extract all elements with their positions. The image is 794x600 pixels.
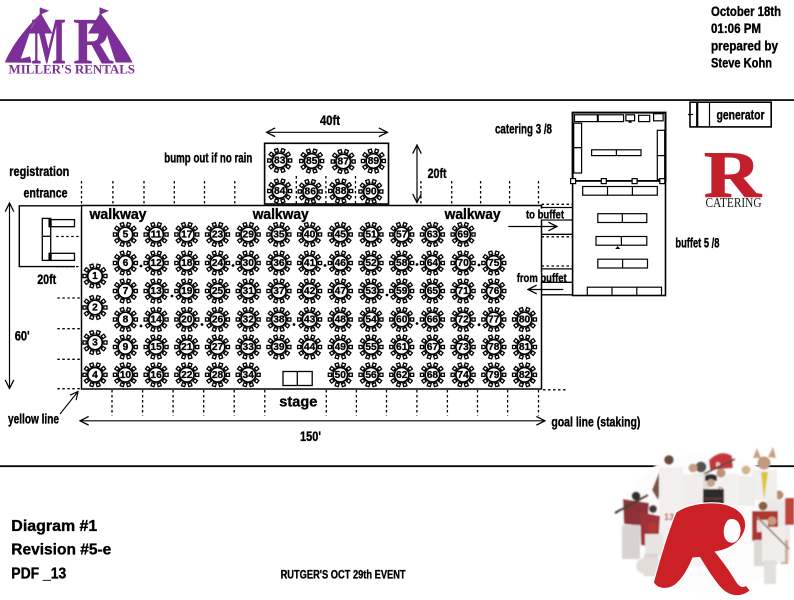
svg-text:CATERING: CATERING [706, 195, 762, 210]
svg-text:74: 74 [457, 370, 469, 381]
svg-text:72: 72 [457, 315, 469, 326]
svg-text:14: 14 [150, 315, 162, 326]
svg-text:PDF _13: PDF _13 [11, 566, 66, 583]
svg-text:65: 65 [427, 286, 439, 297]
svg-text:2: 2 [92, 303, 98, 314]
svg-text:5: 5 [123, 230, 129, 241]
svg-text:82: 82 [519, 370, 531, 381]
svg-text:October 18th: October 18th [711, 4, 781, 19]
svg-text:01:06 PM: 01:06 PM [711, 21, 761, 36]
svg-text:35: 35 [273, 230, 285, 241]
svg-text:goal line (staking): goal line (staking) [551, 415, 640, 430]
svg-text:58: 58 [396, 258, 408, 269]
svg-text:15: 15 [150, 342, 162, 353]
svg-text:1: 1 [92, 271, 98, 282]
svg-text:25: 25 [212, 286, 224, 297]
svg-text:33: 33 [243, 342, 255, 353]
svg-text:7: 7 [123, 286, 129, 297]
svg-text:66: 66 [427, 315, 439, 326]
svg-text:57: 57 [396, 230, 408, 241]
svg-text:12: 12 [150, 258, 162, 269]
svg-text:catering 3 /8: catering 3 /8 [495, 121, 552, 136]
svg-text:28: 28 [212, 370, 224, 381]
svg-text:9: 9 [123, 342, 129, 353]
svg-text:77: 77 [488, 315, 500, 326]
svg-text:3: 3 [92, 338, 98, 349]
svg-text:walkway: walkway [444, 206, 502, 223]
svg-text:53: 53 [365, 286, 377, 297]
svg-text:8: 8 [123, 315, 129, 326]
svg-text:59: 59 [396, 286, 408, 297]
svg-text:RUTGERS: RUTGERS [705, 497, 723, 501]
svg-text:85: 85 [306, 156, 318, 167]
svg-text:11: 11 [151, 230, 162, 241]
svg-text:81: 81 [519, 342, 531, 353]
svg-text:19: 19 [181, 286, 193, 297]
svg-text:50: 50 [335, 370, 347, 381]
svg-text:registration: registration [9, 164, 69, 179]
svg-text:68: 68 [427, 370, 439, 381]
svg-text:17: 17 [181, 230, 193, 241]
svg-text:30: 30 [243, 258, 255, 269]
svg-text:90: 90 [365, 187, 377, 198]
svg-text:36: 36 [273, 258, 285, 269]
svg-text:37: 37 [273, 286, 285, 297]
svg-text:39: 39 [273, 342, 285, 353]
svg-text:46: 46 [335, 258, 347, 269]
svg-text:51: 51 [365, 230, 377, 241]
svg-text:walkway: walkway [89, 206, 148, 223]
svg-text:32: 32 [243, 315, 255, 326]
svg-text:79: 79 [488, 370, 500, 381]
svg-text:56: 56 [365, 370, 377, 381]
svg-text:27: 27 [212, 342, 224, 353]
svg-text:prepared by: prepared by [711, 38, 778, 53]
svg-text:60: 60 [396, 315, 408, 326]
svg-text:16: 16 [150, 370, 162, 381]
svg-text:20ft: 20ft [37, 272, 56, 287]
svg-text:MILLER'S RENTALS: MILLER'S RENTALS [9, 62, 136, 77]
svg-text:150': 150' [300, 429, 321, 444]
svg-text:70: 70 [457, 258, 469, 269]
svg-text:80: 80 [519, 315, 531, 326]
svg-text:84: 84 [274, 186, 286, 197]
svg-text:walkway: walkway [252, 206, 310, 223]
svg-text:21: 21 [181, 342, 193, 353]
svg-text:20: 20 [181, 315, 193, 326]
svg-text:71: 71 [457, 286, 469, 297]
svg-text:69: 69 [457, 230, 469, 241]
svg-text:48: 48 [335, 315, 347, 326]
svg-text:from buffet: from buffet [517, 271, 567, 285]
svg-text:4: 4 [92, 370, 98, 381]
svg-text:64: 64 [427, 258, 439, 269]
svg-text:67: 67 [427, 342, 439, 353]
svg-text:entrance: entrance [24, 186, 68, 201]
svg-text:23: 23 [212, 230, 224, 241]
svg-text:78: 78 [488, 342, 500, 353]
svg-text:73: 73 [457, 342, 469, 353]
svg-text:26: 26 [212, 315, 224, 326]
svg-text:54: 54 [365, 315, 377, 326]
svg-text:22: 22 [181, 370, 193, 381]
svg-text:52: 52 [365, 258, 377, 269]
svg-text:75: 75 [488, 258, 500, 269]
svg-text:yellow line: yellow line [8, 411, 59, 426]
svg-text:Steve Kohn: Steve Kohn [711, 56, 772, 71]
svg-text:43: 43 [304, 315, 316, 326]
svg-text:to buffet: to buffet [526, 208, 564, 222]
svg-text:6: 6 [123, 258, 129, 269]
svg-text:Diagram #1: Diagram #1 [11, 518, 97, 535]
svg-text:55: 55 [365, 342, 377, 353]
svg-text:62: 62 [396, 370, 408, 381]
svg-text:bump out if no rain: bump out if no rain [164, 151, 252, 166]
svg-text:10: 10 [120, 370, 132, 381]
svg-text:41: 41 [304, 258, 316, 269]
svg-text:88: 88 [335, 186, 347, 197]
svg-text:86: 86 [305, 187, 317, 198]
svg-text:Revision #5-e: Revision #5-e [11, 542, 111, 559]
svg-text:18: 18 [181, 258, 193, 269]
svg-text:24: 24 [212, 258, 224, 269]
svg-text:83: 83 [274, 156, 286, 167]
svg-text:63: 63 [427, 230, 439, 241]
svg-text:RUTGER'S OCT 29th EVENT: RUTGER'S OCT 29th EVENT [281, 570, 406, 582]
svg-text:38: 38 [273, 315, 285, 326]
svg-text:89: 89 [368, 156, 380, 167]
svg-text:40ft: 40ft [320, 113, 340, 128]
svg-text:45: 45 [335, 230, 347, 241]
svg-text:76: 76 [488, 286, 500, 297]
svg-text:29: 29 [243, 230, 255, 241]
svg-text:stage: stage [279, 394, 317, 411]
svg-text:20ft: 20ft [428, 166, 447, 181]
svg-text:44: 44 [304, 342, 316, 353]
svg-text:60': 60' [15, 329, 30, 344]
svg-text:31: 31 [243, 286, 255, 297]
svg-text:47: 47 [335, 286, 347, 297]
svg-text:buffet 5 /8: buffet 5 /8 [675, 236, 719, 251]
svg-text:87: 87 [338, 157, 350, 168]
svg-text:34: 34 [243, 370, 255, 381]
svg-text:49: 49 [335, 342, 347, 353]
svg-text:40: 40 [304, 230, 316, 241]
svg-text:61: 61 [396, 342, 408, 353]
svg-text:13: 13 [150, 286, 162, 297]
svg-text:generator: generator [717, 108, 766, 123]
svg-text:42: 42 [304, 286, 316, 297]
